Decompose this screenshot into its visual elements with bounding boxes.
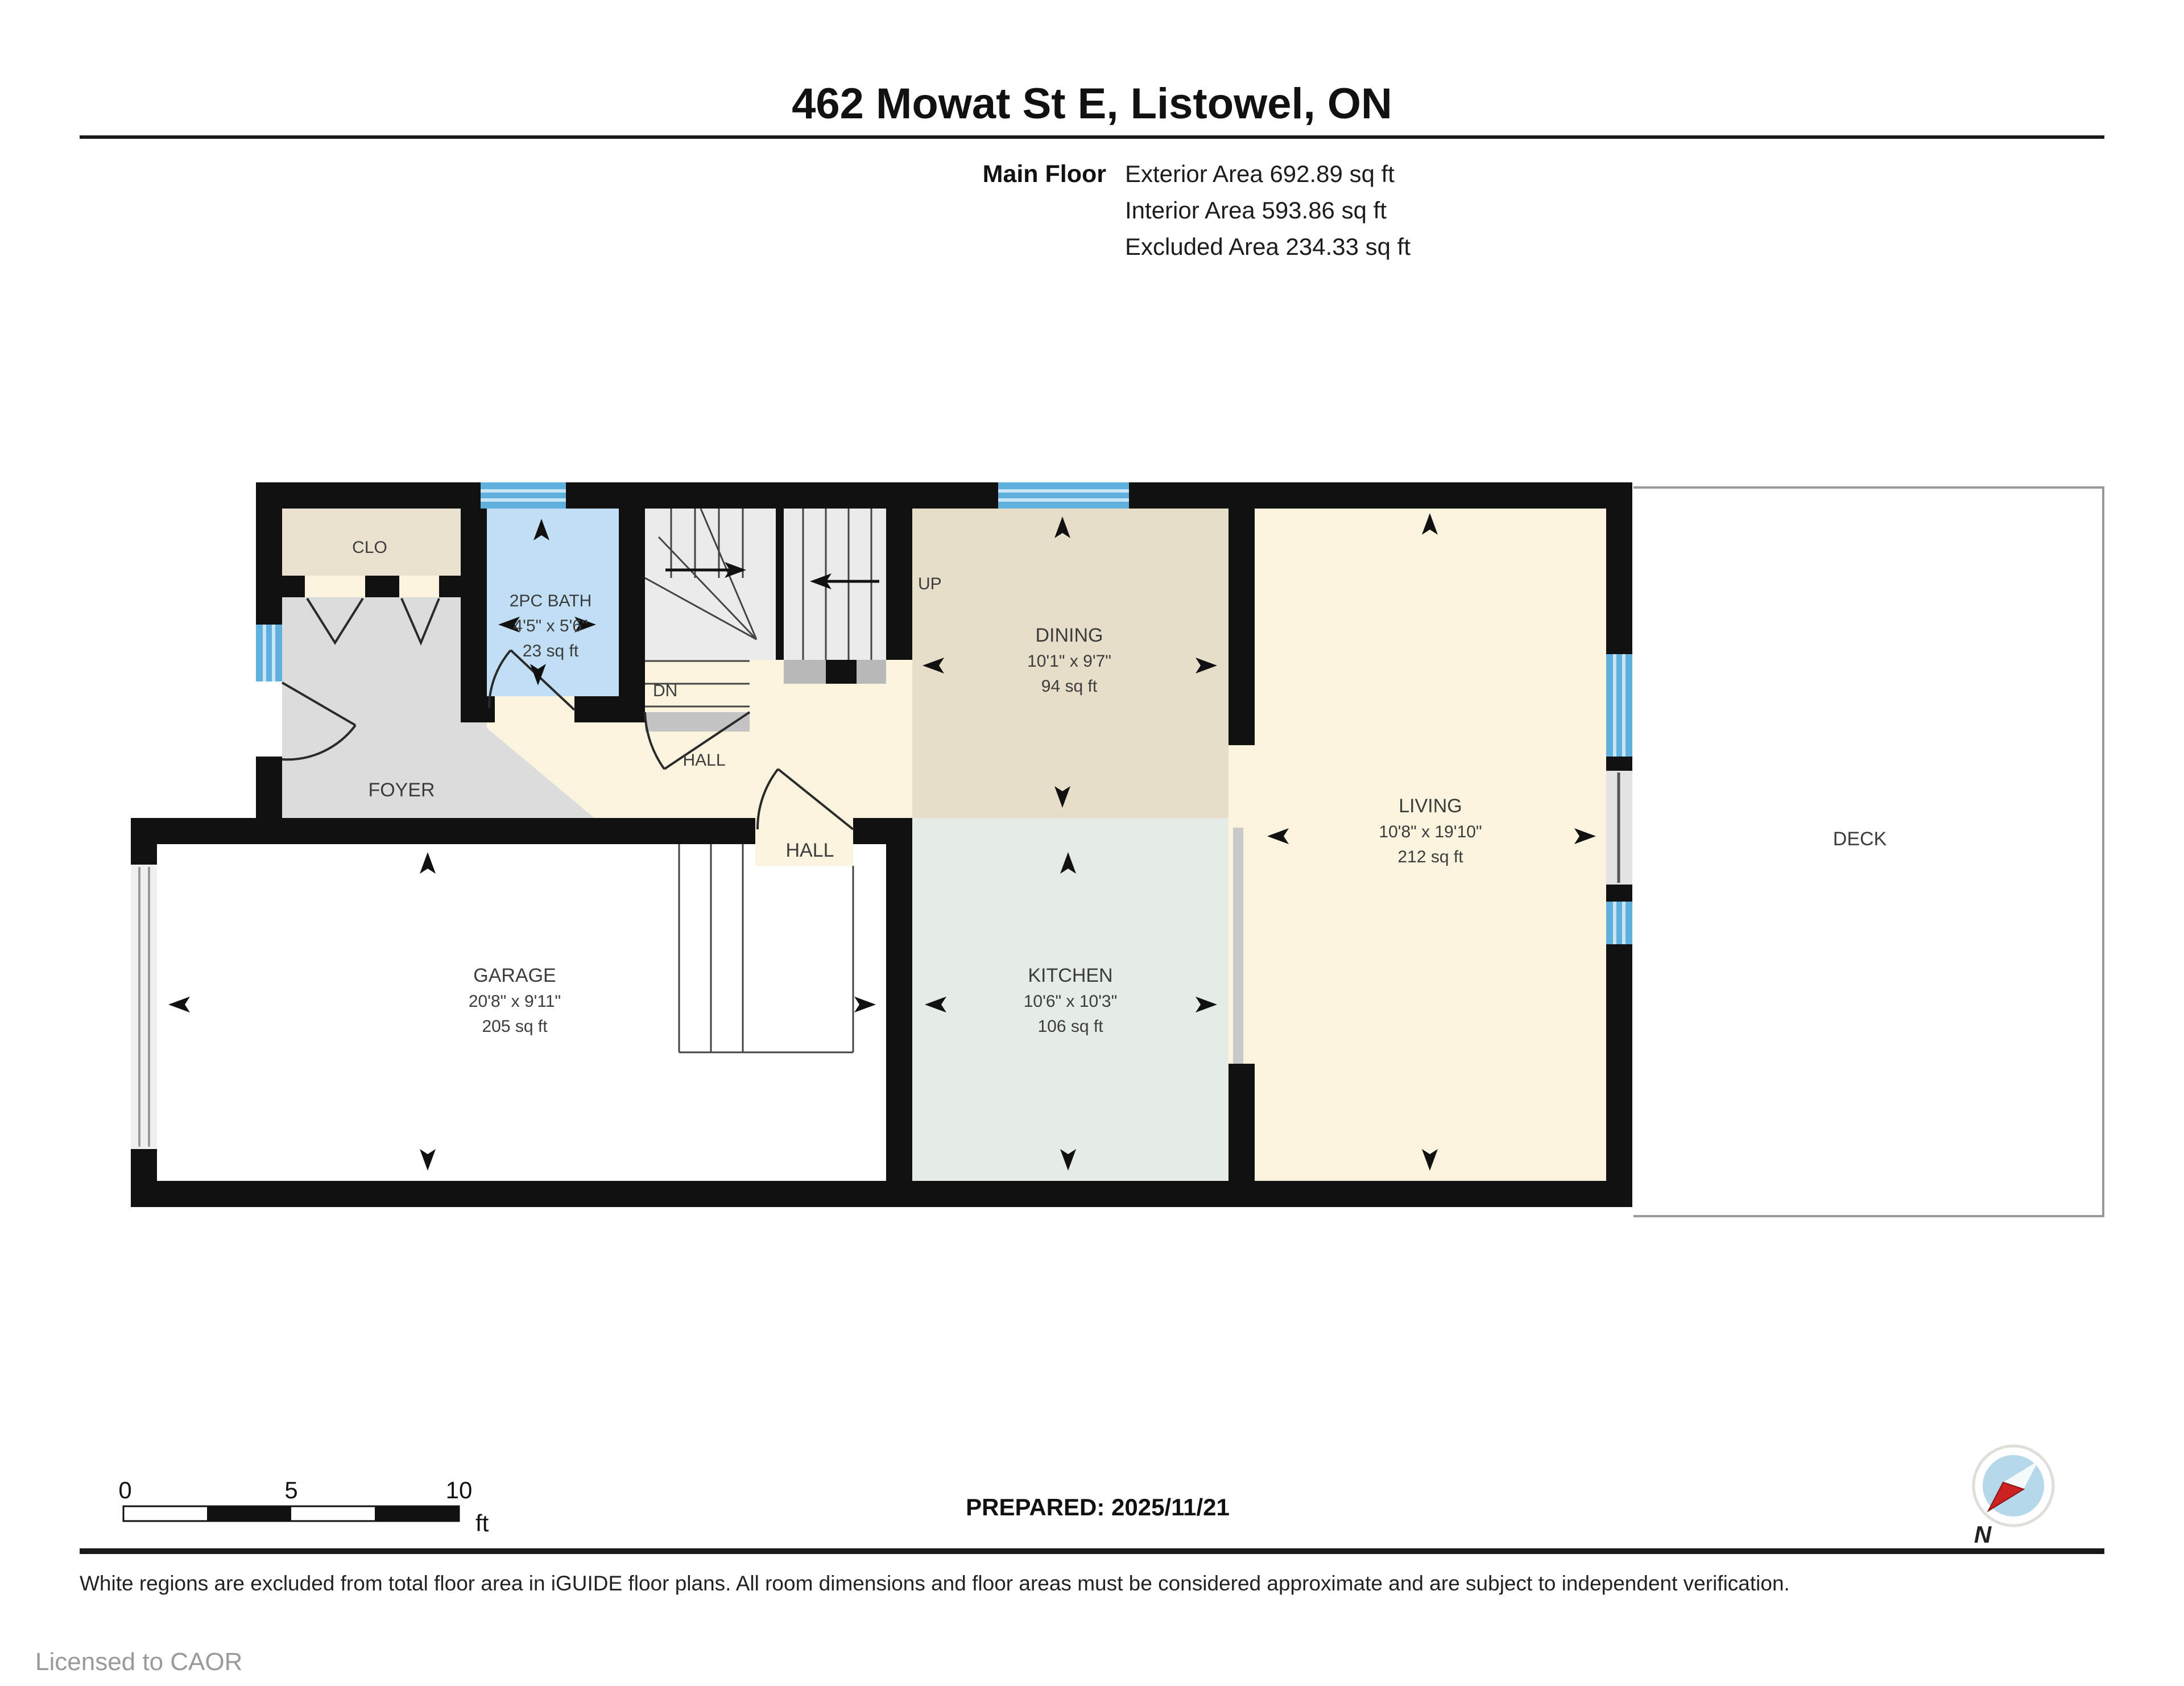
- excluded-area: Excluded Area 234.33 sq ft: [1125, 233, 1410, 260]
- scale-bar-seg2: [375, 1506, 459, 1521]
- window-foyer: [256, 625, 282, 681]
- scale-bar-seg1: [207, 1506, 291, 1521]
- wall-bottom: [886, 1181, 1632, 1207]
- scale-10: 10: [446, 1477, 473, 1503]
- label-garage-area: 205 sq ft: [482, 1017, 548, 1036]
- deck-outline: [1633, 487, 2103, 1216]
- scale-5: 5: [284, 1477, 297, 1503]
- label-dining: DINING: [1036, 625, 1103, 646]
- floor-plan-page: 462 Mowat St E, Listowel, ON Main Floor …: [0, 0, 2184, 1686]
- wall-garage-bottom: [131, 1181, 912, 1207]
- window-bath: [481, 482, 566, 509]
- entry-door-opening: [256, 681, 282, 757]
- label-hall: HALL: [785, 840, 834, 861]
- label-dining-area: 94 sq ft: [1041, 677, 1098, 696]
- label-foyer: FOYER: [368, 779, 435, 801]
- label-kitchen: KITCHEN: [1028, 965, 1112, 986]
- window-living-lower: [1606, 902, 1632, 944]
- wall-bath-bottom-b: [574, 696, 645, 722]
- compass-icon: N: [1974, 1446, 2053, 1548]
- scale-unit: ft: [475, 1510, 489, 1536]
- wall-clo-c: [439, 576, 461, 597]
- label-up: UP: [918, 575, 942, 593]
- wall-bath-left: [461, 509, 487, 722]
- wall-clo-a: [282, 576, 305, 597]
- wall-kitchen-garage: [886, 818, 912, 1207]
- prepared-date: PREPARED: 2025/11/21: [966, 1494, 1230, 1520]
- label-living-dims: 10'8" x 19'10": [1379, 823, 1482, 841]
- label-kitchen-dims: 10'6" x 10'3": [1024, 992, 1118, 1011]
- label-clo: CLO: [352, 538, 387, 557]
- label-deck: DECK: [1833, 828, 1887, 850]
- label-living-area: 212 sq ft: [1397, 848, 1463, 866]
- scale-bar: 0 5 10 ft: [118, 1477, 489, 1536]
- label-bath-area: 23 sq ft: [523, 642, 579, 660]
- wall-kitchen-living: [1228, 1064, 1255, 1207]
- wall-bath-right: [619, 509, 645, 722]
- wall-stair-divider: [776, 509, 784, 660]
- kitchen-living-halfwall: [1233, 828, 1243, 1064]
- interior-area: Interior Area 593.86 sq ft: [1125, 197, 1387, 224]
- label-garage: GARAGE: [473, 965, 556, 986]
- compass-north-label: N: [1974, 1521, 1992, 1548]
- garage-door: [131, 865, 157, 1149]
- scale-0: 0: [118, 1477, 131, 1503]
- label-hall-small: HALL: [682, 751, 725, 770]
- page-title: 462 Mowat St E, Listowel, ON: [792, 80, 1392, 128]
- floor-plan-canvas: 462 Mowat St E, Listowel, ON Main Floor …: [0, 0, 2184, 1686]
- license-text: Licensed to CAOR: [35, 1648, 242, 1676]
- label-bath: 2PC BATH: [510, 592, 591, 610]
- window-dining: [998, 482, 1129, 509]
- wall-dining-living: [1228, 482, 1255, 745]
- wall-top: [256, 482, 1632, 509]
- label-garage-dims: 20'8" x 9'11": [469, 992, 561, 1011]
- wall-garage-top-left: [131, 818, 755, 844]
- footer-divider: [80, 1548, 2104, 1554]
- disclaimer-text: White regions are excluded from total fl…: [80, 1572, 1790, 1595]
- wall-clo-b: [365, 576, 399, 597]
- label-dining-dims: 10'1" x 9'7": [1027, 652, 1111, 671]
- patio-door: [1606, 771, 1632, 885]
- floor-label: Main Floor: [983, 160, 1107, 188]
- header-divider: [80, 135, 2104, 139]
- wall-stair-dining: [886, 509, 912, 660]
- label-bath-dims: 4'5" x 5'6": [513, 617, 588, 635]
- label-living: LIVING: [1399, 795, 1462, 817]
- window-living-upper: [1606, 654, 1632, 757]
- label-dn: DN: [653, 681, 677, 700]
- stairs-fill: [645, 509, 886, 660]
- exterior-area: Exterior Area 692.89 sq ft: [1125, 160, 1395, 187]
- label-kitchen-area: 106 sq ft: [1037, 1017, 1103, 1036]
- room-living-fill: [1228, 509, 1606, 1181]
